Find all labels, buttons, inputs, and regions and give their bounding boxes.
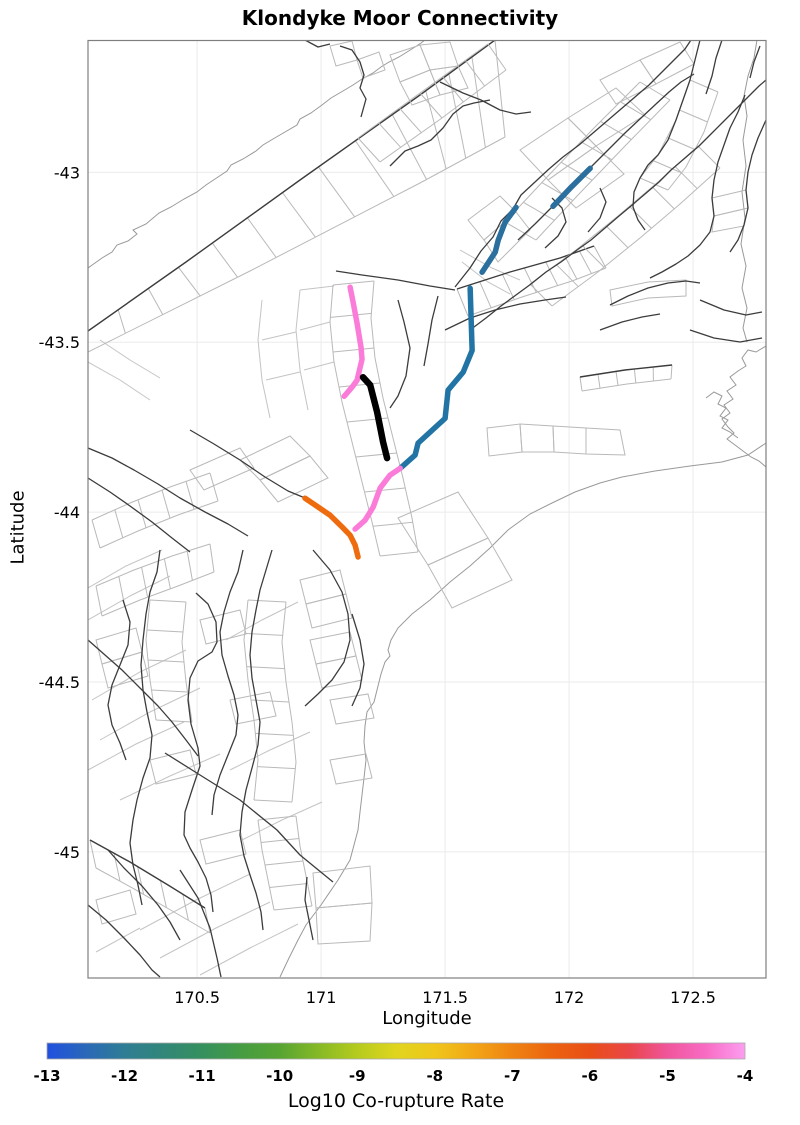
fault-section — [200, 830, 246, 864]
fault-section-rung — [502, 274, 514, 299]
y-tick-label: -44.5 — [39, 673, 80, 692]
y-tick-label: -44 — [54, 503, 80, 522]
fault-trace — [390, 300, 410, 408]
fault-trace — [358, 44, 488, 138]
fault-section-rung — [579, 251, 591, 273]
fault-section-rung — [671, 365, 672, 379]
fault-trace — [424, 296, 438, 366]
fault-section-line — [100, 340, 160, 378]
fault-section-rung — [530, 284, 552, 306]
fault-section-rung — [118, 310, 125, 334]
fault-section-rung — [247, 218, 276, 258]
fault-section-rung — [92, 520, 100, 548]
co-rupture-trace-blue-long — [400, 288, 472, 468]
y-tick-label: -43.5 — [39, 333, 80, 352]
x-tick-label: 172 — [554, 988, 585, 1007]
fault-trace — [640, 80, 690, 178]
fault-section-rung — [698, 146, 720, 168]
fault-section-rung — [152, 690, 188, 692]
fault-section-rung — [420, 93, 442, 118]
fault-section-rung — [187, 551, 192, 580]
colorbar-label: Log10 Co-rupture Rate — [0, 1090, 792, 1112]
fault-trace — [588, 188, 606, 232]
fault-section-rung — [457, 289, 468, 316]
y-tick-label: -45 — [54, 843, 80, 862]
fault-section — [430, 66, 468, 95]
co-rupture-trace-pink-upper — [344, 287, 362, 396]
fault-section-rail — [88, 137, 505, 352]
x-axis-label: Longitude — [0, 1008, 800, 1029]
fault-section-rung — [164, 559, 170, 589]
x-tick-label: 172.5 — [670, 988, 716, 1007]
fault-section-rung — [495, 40, 505, 137]
colorbar-tick-label: -13 — [33, 1067, 60, 1085]
fault-section-rung — [690, 80, 718, 92]
fault-section-rung — [210, 544, 214, 572]
plot-frame — [88, 41, 766, 979]
fault-trace — [165, 753, 333, 882]
fault-section-line — [88, 550, 162, 588]
colorbar-tick-label: -8 — [426, 1067, 443, 1085]
fault-section-rail — [536, 100, 670, 240]
colorbar-tick-label: -9 — [349, 1067, 366, 1085]
fault-section-rung — [565, 256, 577, 279]
colorbar-tick-label: -12 — [111, 1067, 138, 1085]
fault-trace — [530, 146, 698, 284]
fault-section-rung — [675, 167, 697, 189]
fault-section-rail — [468, 268, 606, 316]
fault-section-rung — [156, 720, 192, 722]
map-content — [88, 40, 766, 978]
fault-trace — [336, 271, 455, 290]
fault-section-line — [230, 732, 310, 770]
fault-section-rung — [142, 567, 148, 597]
fault-section-rail — [582, 379, 671, 391]
fault-section-line — [300, 286, 334, 290]
fault-section — [586, 428, 625, 455]
fault-section-line — [296, 290, 308, 410]
fault-section — [330, 694, 374, 724]
fault-section-rung — [392, 115, 426, 180]
x-tick-label: 170.5 — [174, 988, 220, 1007]
fault-trace — [690, 330, 762, 342]
fault-section-rung — [90, 840, 96, 868]
target-fault-trace — [363, 377, 387, 458]
colorbar — [47, 1043, 745, 1059]
fault-trace — [88, 905, 160, 977]
fault-section — [610, 280, 686, 306]
fault-section-rung — [245, 633, 283, 635]
coastline — [722, 346, 766, 467]
fault-section-rung — [282, 193, 315, 238]
fault-section-rung — [150, 600, 186, 602]
fault-section-rung — [212, 243, 237, 277]
fault-section-rung — [255, 733, 293, 735]
x-tick-label: 171 — [306, 988, 337, 1007]
fault-trace — [706, 40, 722, 94]
fault-section-rung — [652, 187, 674, 209]
fault-section-rung — [330, 313, 371, 317]
fault-section — [420, 42, 458, 70]
fault-section-rung — [115, 510, 123, 538]
fault-section — [190, 448, 254, 490]
fault-section-rung — [333, 281, 374, 285]
fault-section-rung — [616, 371, 618, 385]
fault-section — [260, 456, 328, 502]
colorbar-tick-label: -5 — [659, 1067, 676, 1085]
fault-trace — [470, 80, 766, 330]
colorbar-tick-label: -10 — [266, 1067, 293, 1085]
fault-section-rung — [594, 246, 606, 268]
fault-section-rung — [365, 488, 406, 492]
fault-section-rung — [634, 369, 635, 383]
fault-section-rung — [261, 839, 299, 843]
fault-section-line — [88, 722, 184, 770]
fault-section-rung — [318, 167, 354, 217]
fault-trace — [340, 46, 366, 117]
colorbar-tick-label: -4 — [737, 1067, 754, 1085]
fault-trace — [180, 870, 221, 977]
fault-section — [240, 436, 310, 480]
fault-section-rung — [580, 377, 582, 391]
fault-section-rung — [148, 660, 184, 662]
fault-section-rung — [270, 884, 308, 888]
co-rupture-trace-blue-diagonal — [553, 168, 590, 206]
fault-section-rung — [523, 202, 554, 220]
fault-section-rung — [380, 552, 418, 556]
y-axis-label: Latitude — [8, 448, 29, 608]
fault-section-rung — [606, 226, 628, 248]
fault-section — [487, 424, 522, 456]
fault-section — [428, 538, 512, 608]
fault-trace — [700, 300, 762, 315]
fault-section-rung — [379, 123, 401, 147]
fault-trace — [305, 877, 313, 940]
y-tick-label: -43 — [54, 163, 80, 182]
fault-section — [398, 492, 488, 565]
fault-section-line — [300, 322, 330, 330]
fault-section-rung — [254, 800, 292, 802]
fault-section-rung — [620, 102, 650, 120]
fault-section-rung — [96, 586, 102, 616]
fault-section-line — [258, 300, 270, 418]
fault-trace — [390, 100, 490, 166]
fault-section-rung — [443, 77, 464, 102]
co-rupture-trace-blue-short — [482, 207, 516, 272]
fault-section-rung — [629, 206, 651, 228]
colorbar-tick-label: -6 — [582, 1067, 599, 1085]
fault-section-line — [120, 754, 220, 800]
fault-section-rung — [667, 138, 695, 150]
fault-section-rung — [138, 500, 146, 528]
co-rupture-trace-orange — [305, 498, 358, 557]
fault-section-rung — [160, 880, 166, 907]
fault-section-rung — [148, 289, 162, 315]
fault-section-rung — [257, 767, 295, 769]
fault-section-line — [262, 332, 296, 340]
fault-trace — [88, 40, 495, 331]
x-tick-label: 171.5 — [422, 988, 468, 1007]
fault-section-line — [88, 576, 170, 620]
fault-trace — [580, 365, 672, 377]
figure: Klondyke Moor Connectivity 170.5171171.5… — [0, 0, 800, 1125]
fault-section-rung — [356, 453, 397, 457]
fault-section-rung — [162, 490, 170, 518]
fault-section-rung — [598, 374, 600, 388]
fault-section-line — [88, 362, 150, 400]
fault-section — [520, 424, 554, 452]
fault-section-rung — [183, 894, 189, 920]
fault-section-rung — [333, 348, 374, 352]
fault-section-line — [242, 802, 322, 840]
fault-section-rung — [355, 141, 393, 197]
fault-trace — [184, 593, 217, 912]
fault-trace — [730, 120, 766, 252]
fault-section-rung — [654, 161, 682, 173]
fault-trace — [240, 460, 305, 498]
fault-section — [150, 750, 196, 784]
fault-section-rung — [373, 522, 413, 526]
fault-section — [330, 41, 357, 66]
fault-section-rung — [147, 630, 183, 632]
fault-section-rung — [247, 667, 285, 669]
fault-section-rung — [488, 44, 506, 70]
fault-section-line — [266, 372, 300, 380]
fault-section-rung — [248, 600, 286, 602]
fault-section — [96, 890, 136, 924]
fault-section-rung — [582, 245, 604, 267]
fault-section-rung — [399, 108, 421, 133]
co-rupture-trace-pink-lower — [355, 468, 400, 529]
map-plot: 170.5171171.5172172.5-43-43.5-44-44.5-45… — [0, 0, 800, 1125]
fault-section — [400, 70, 440, 105]
colorbar-tick-label: -11 — [189, 1067, 216, 1085]
fault-section — [306, 594, 352, 628]
fault-section-rung — [465, 60, 484, 86]
fault-section — [600, 60, 656, 104]
fault-trace — [600, 314, 660, 330]
fault-section-line — [92, 650, 186, 700]
fault-trace — [88, 448, 248, 536]
fault-section-rung — [265, 861, 303, 865]
fault-section-rung — [480, 282, 491, 308]
fault-trace — [352, 614, 364, 706]
fault-section — [310, 632, 356, 664]
fault-section — [316, 656, 362, 688]
fault-section — [316, 903, 372, 944]
fault-section-line — [304, 362, 334, 370]
colorbar-tick-label: -7 — [504, 1067, 521, 1085]
